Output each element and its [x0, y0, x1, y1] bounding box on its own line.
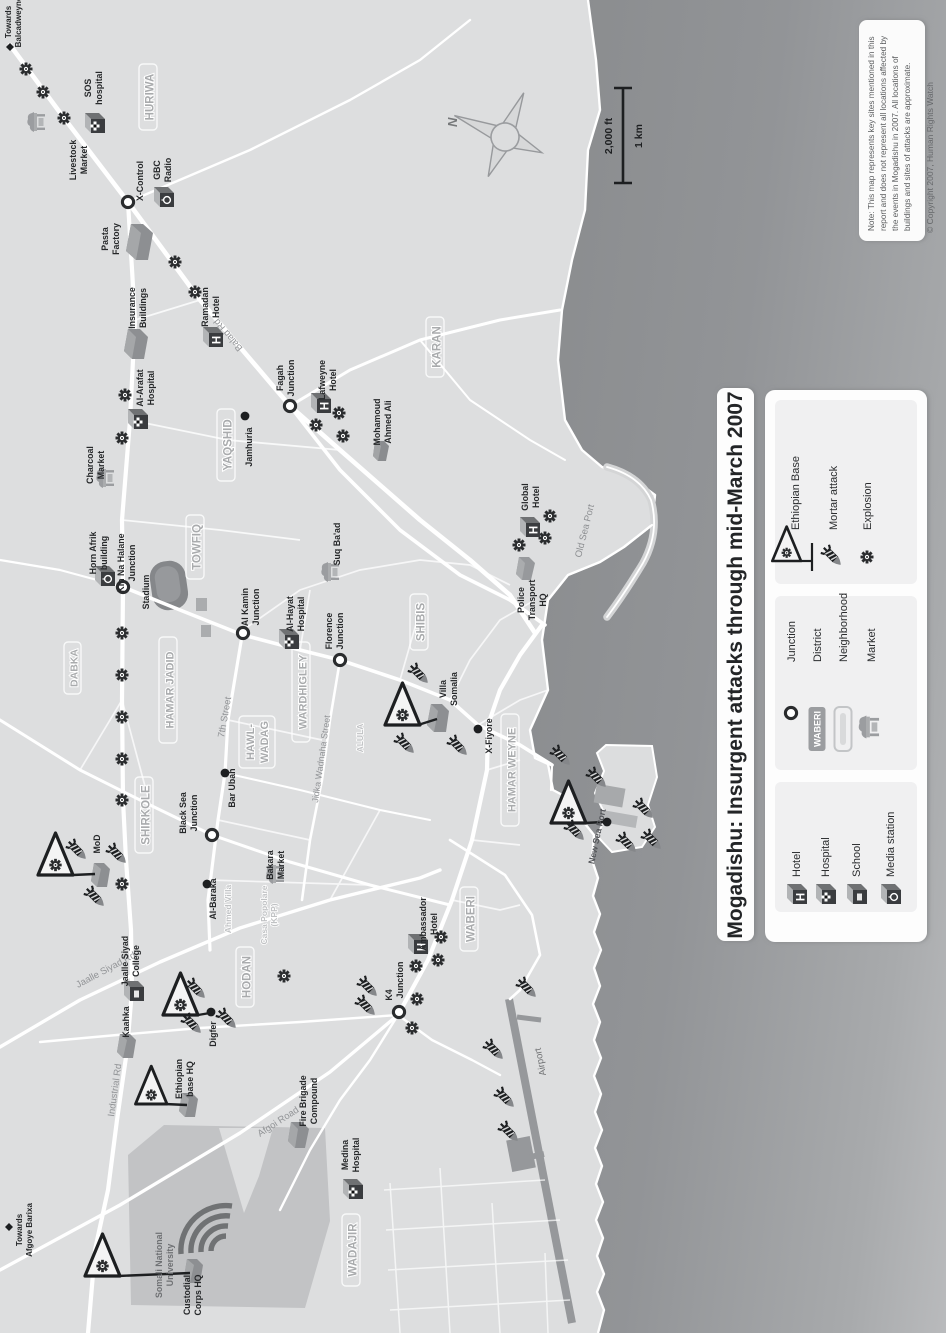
svg-text:University: University	[165, 1244, 175, 1287]
svg-text:Medina: Medina	[340, 1140, 350, 1170]
svg-text:Market: Market	[276, 851, 286, 879]
svg-text:Al Kamin: Al Kamin	[240, 588, 250, 626]
svg-text:Ahmed Ali: Ahmed Ali	[383, 400, 393, 443]
svg-text:Compound: Compound	[309, 1078, 319, 1124]
svg-text:Ambassador: Ambassador	[418, 897, 428, 951]
svg-text:Junction: Junction	[189, 795, 199, 832]
svg-text:Jamhuria: Jamhuria	[244, 427, 254, 466]
svg-text:Florence: Florence	[324, 613, 334, 650]
svg-text:Mohamoud: Mohamoud	[372, 399, 382, 446]
svg-text:HURIWA: HURIWA	[145, 74, 157, 121]
svg-text:Buildings: Buildings	[138, 288, 148, 328]
svg-text:hospital: hospital	[94, 71, 104, 105]
svg-text:Kaahka: Kaahka	[121, 1006, 131, 1037]
svg-text:Mogadishu: Insurgent attacks t: Mogadishu: Insurgent attacks through mid…	[724, 391, 747, 938]
svg-text:Al-Hayat: Al-Hayat	[285, 596, 295, 632]
svg-text:Somali National: Somali National	[154, 1232, 164, 1298]
svg-text:Insurance: Insurance	[127, 287, 137, 329]
svg-text:N: N	[445, 117, 460, 127]
svg-text:Market: Market	[866, 628, 878, 662]
svg-text:Transport: Transport	[527, 580, 537, 621]
svg-text:Hotel: Hotel	[791, 851, 803, 877]
svg-text:Mortar attack: Mortar attack	[828, 465, 840, 530]
svg-text:Market: Market	[96, 451, 106, 479]
svg-text:K4: K4	[384, 989, 394, 1000]
svg-text:(KPP): (KPP)	[269, 903, 279, 926]
svg-text:SOS: SOS	[83, 79, 93, 98]
svg-text:Al-Arafat: Al-Arafat	[135, 369, 145, 406]
svg-text:WABERI: WABERI	[466, 896, 478, 942]
svg-text:1 km: 1 km	[633, 124, 645, 148]
svg-text:Casa Popolare: Casa Popolare	[259, 885, 269, 944]
svg-text:WARDHIGLEY: WARDHIGLEY	[298, 654, 310, 729]
svg-text:GBC: GBC	[152, 160, 162, 180]
svg-text:Junction: Junction	[395, 962, 405, 999]
svg-text:Factory: Factory	[111, 223, 121, 255]
svg-text:Hospital: Hospital	[351, 1138, 361, 1173]
svg-text:HAWL-: HAWL-	[245, 724, 257, 760]
svg-text:Somalia: Somalia	[449, 672, 459, 706]
svg-text:Custodial: Custodial	[182, 1275, 192, 1315]
svg-text:building: building	[99, 536, 109, 570]
svg-text:Ethiopian Base: Ethiopian Base	[790, 456, 802, 530]
svg-text:Hospital: Hospital	[146, 371, 156, 406]
svg-text:Digfer: Digfer	[208, 1021, 218, 1047]
svg-text:Hotel: Hotel	[211, 296, 221, 318]
svg-text:Horn Afrik: Horn Afrik	[88, 532, 98, 575]
svg-text:WADAG: WADAG	[259, 721, 271, 763]
svg-text:Hospital: Hospital	[820, 837, 832, 877]
svg-text:Junction: Junction	[251, 589, 261, 626]
svg-text:Radio: Radio	[163, 157, 173, 182]
svg-text:Fagah: Fagah	[275, 365, 285, 391]
svg-text:Km Na Halane: Km Na Halane	[116, 533, 126, 592]
svg-text:X-Control: X-Control	[135, 161, 145, 201]
svg-text:Ethiopian: Ethiopian	[174, 1059, 184, 1099]
svg-text:SHIRKOLE: SHIRKOLE	[141, 785, 153, 845]
svg-text:Corps HQ: Corps HQ	[193, 1274, 203, 1315]
svg-text:Ramadan: Ramadan	[200, 287, 210, 327]
svg-text:District: District	[812, 628, 824, 662]
svg-text:Villa: Villa	[438, 680, 448, 698]
svg-text:report and does not represent: report and does not represent all locati…	[879, 35, 888, 231]
svg-text:ALULA: ALULA	[355, 724, 365, 753]
svg-text:Global: Global	[520, 483, 530, 510]
svg-text:2,000 ft: 2,000 ft	[603, 117, 615, 154]
svg-text:Junction: Junction	[786, 621, 798, 662]
svg-text:SHIBIS: SHIBIS	[416, 603, 428, 642]
svg-text:HODAN: HODAN	[242, 956, 254, 998]
svg-text:Balcadweyne: Balcadweyne	[14, 0, 23, 47]
svg-text:Black Sea: Black Sea	[178, 792, 188, 834]
svg-text:College: College	[131, 945, 141, 977]
svg-text:Charcoal: Charcoal	[85, 446, 95, 484]
svg-text:YAQSHID: YAQSHID	[223, 419, 235, 470]
svg-text:Hotel: Hotel	[429, 913, 439, 935]
svg-text:Al-Baraka: Al-Baraka	[208, 878, 218, 919]
svg-text:Fire Brigade: Fire Brigade	[298, 1075, 308, 1126]
svg-text:the events in Mogadishu in 200: the events in Mogadishu in 2007. All loc…	[891, 55, 900, 231]
svg-text:Towards: Towards	[4, 5, 13, 38]
svg-text:base HQ: base HQ	[185, 1061, 195, 1097]
svg-text:Pasta: Pasta	[100, 227, 110, 251]
svg-text:Hospital: Hospital	[296, 597, 306, 632]
svg-text:Lafweyne: Lafweyne	[317, 360, 327, 400]
svg-text:Ahmed Villa: Ahmed Villa	[223, 884, 233, 933]
svg-text:Hotel: Hotel	[328, 369, 338, 391]
svg-text:buildings and sites of attacks: buildings and sites of attacks are appro…	[903, 63, 912, 231]
svg-text:Junction: Junction	[335, 613, 345, 650]
svg-text:School: School	[851, 843, 863, 877]
svg-text:Stadium: Stadium	[141, 574, 151, 609]
svg-text:WADAJIR: WADAJIR	[348, 1223, 360, 1277]
svg-text:Police: Police	[516, 587, 526, 613]
svg-text:Bar Ubah: Bar Ubah	[227, 768, 237, 807]
svg-text:Junction: Junction	[127, 545, 137, 582]
svg-text:HAMAR WEYNE: HAMAR WEYNE	[507, 728, 519, 812]
svg-text:Jaalle Siyad: Jaalle Siyad	[120, 936, 130, 986]
svg-text:HAMAR JADID: HAMAR JADID	[165, 651, 177, 728]
svg-text:Livestock: Livestock	[68, 140, 78, 181]
svg-text:HQ: HQ	[538, 593, 548, 606]
svg-text:Junction: Junction	[286, 360, 296, 397]
svg-text:Note: This map represents key: Note: This map represents key sites ment…	[867, 36, 876, 231]
svg-text:Towards: Towards	[15, 1213, 24, 1246]
svg-text:Explosion: Explosion	[862, 482, 874, 530]
svg-text:Suq Ba'ad: Suq Ba'ad	[332, 523, 342, 566]
svg-text:Bakara: Bakara	[265, 850, 275, 879]
svg-text:WABERI: WABERI	[813, 711, 823, 747]
svg-text:KARAN: KARAN	[432, 326, 444, 368]
svg-text:Hotel: Hotel	[531, 486, 541, 508]
svg-text:MoD: MoD	[92, 834, 102, 853]
svg-text:Afgoye Barixa: Afgoye Barixa	[25, 1203, 34, 1257]
svg-text:X-Fiyore: X-Fiyore	[484, 718, 494, 753]
svg-text:Media station: Media station	[885, 812, 897, 877]
svg-text:Market: Market	[79, 146, 89, 174]
svg-text:Neighborhood: Neighborhood	[838, 593, 850, 662]
svg-text:TOWFIQ: TOWFIQ	[192, 524, 204, 570]
svg-text:© Copyright 2007, Human Rights: © Copyright 2007, Human Rights Watch	[925, 82, 935, 233]
svg-text:DABKA: DABKA	[69, 649, 81, 687]
